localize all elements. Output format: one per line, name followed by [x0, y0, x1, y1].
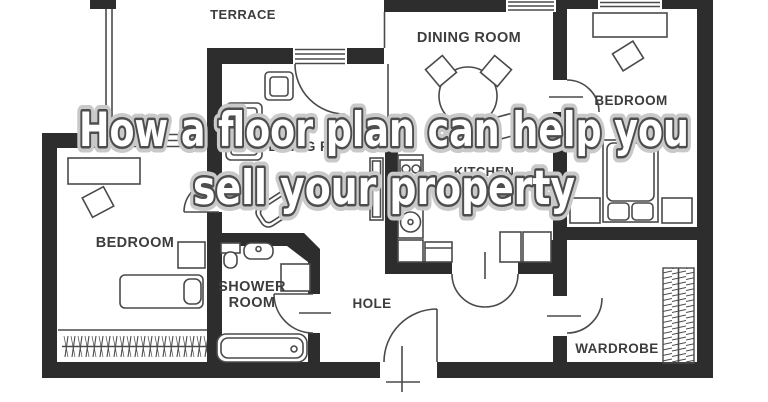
- desk: [593, 13, 667, 37]
- bedroom-left-furniture: [58, 158, 207, 357]
- outer-bottom-wall: [42, 362, 713, 378]
- counter-right-b: [523, 232, 551, 262]
- counter-right-a: [500, 232, 521, 262]
- nightstand: [662, 198, 692, 223]
- sink: [244, 243, 273, 259]
- toilet: [221, 243, 240, 268]
- bedroom-wardrobe-divider-wall: [553, 227, 713, 240]
- title-line2: sell your property: [193, 161, 575, 216]
- shower-door: [274, 294, 331, 333]
- room-label-wardrobe: WARDROBE: [575, 341, 658, 356]
- terrace-french-window: [293, 48, 347, 64]
- room-label-hall: HOLE: [352, 296, 391, 311]
- floor-plan-svg: TERRACE DINING ROOM BEDROOM LIVING ROOM …: [0, 0, 768, 402]
- terrace-top-stub-wall: [90, 0, 116, 9]
- room-label-shower-line2: ROOM: [229, 295, 276, 311]
- desk: [68, 158, 140, 184]
- outer-left-wall: [42, 133, 57, 378]
- room-label-dining: DINING ROOM: [417, 30, 521, 46]
- dining-window: [506, 0, 556, 12]
- entry-door: [384, 309, 437, 392]
- bedroom-right-window: [598, 0, 662, 9]
- clothes-rail: [663, 268, 694, 363]
- room-label-shower-line1: SHOWER: [218, 279, 286, 295]
- bathtub: [217, 334, 307, 362]
- bed: [120, 275, 203, 308]
- armchair: [265, 72, 293, 100]
- room-label-bedroom-left: BEDROOM: [96, 235, 175, 251]
- wardrobe-fixtures: [663, 268, 694, 363]
- counter-bottom: [425, 242, 452, 262]
- chair: [82, 187, 114, 218]
- counter-cabinet: [398, 240, 423, 262]
- nightstand: [178, 242, 205, 268]
- chair: [613, 41, 644, 71]
- entry-door-opening: [380, 362, 437, 378]
- outer-right-wall: [697, 0, 713, 378]
- title-line1: How a floor plan can help you: [79, 103, 689, 158]
- room-label-terrace: TERRACE: [210, 7, 276, 22]
- radiator: [58, 330, 207, 357]
- floor-plan-image: TERRACE DINING ROOM BEDROOM LIVING ROOM …: [0, 0, 768, 402]
